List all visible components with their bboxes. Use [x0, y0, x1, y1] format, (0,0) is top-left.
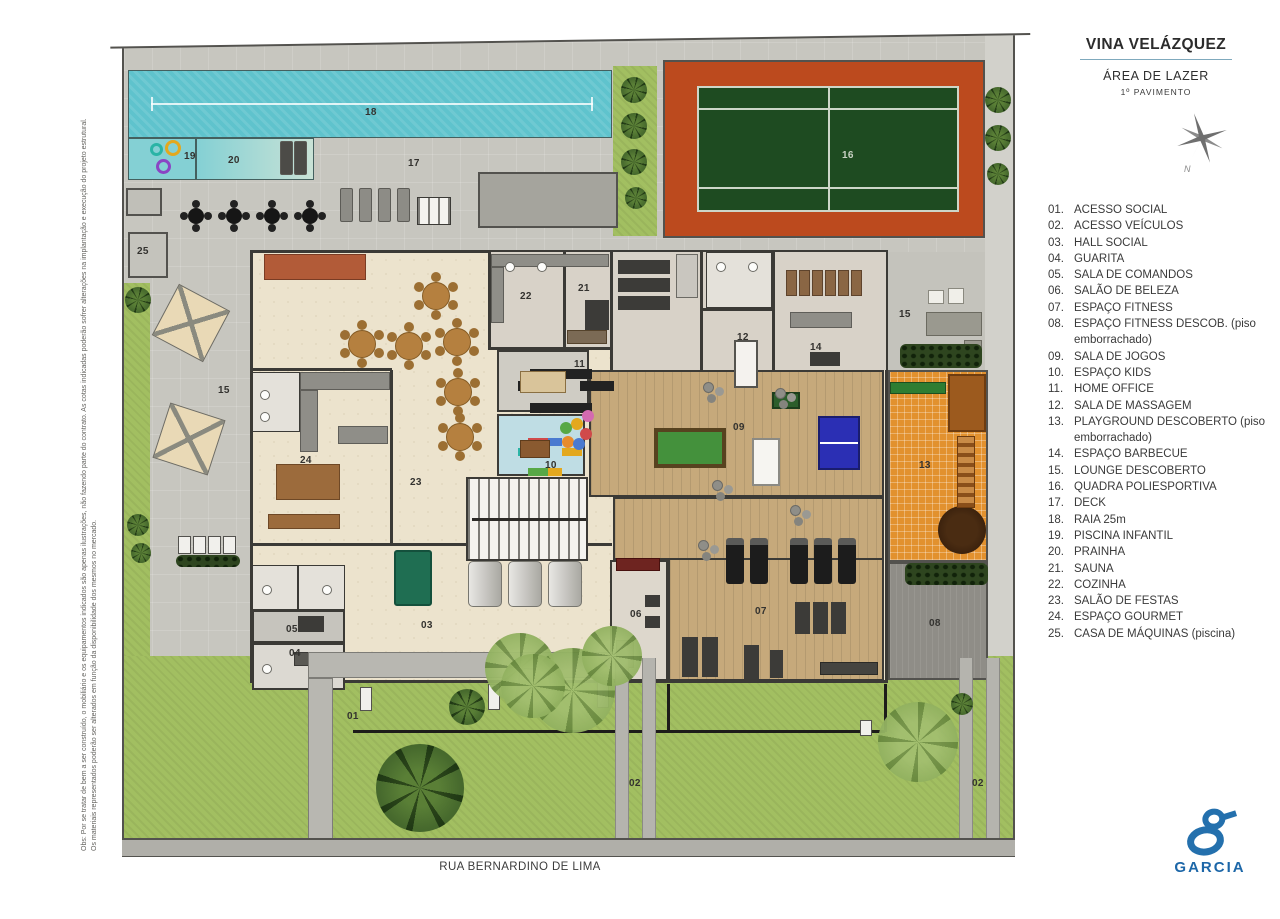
legend-item-number: 23.: [1048, 593, 1069, 609]
title-divider: [1080, 59, 1232, 60]
court-center-line: [828, 88, 830, 210]
legend-item-label: HOME OFFICE: [1074, 381, 1154, 397]
grass-west-strip: [124, 283, 150, 656]
gym-machine: [770, 650, 783, 678]
wall: [610, 252, 613, 372]
legend-item: 07.ESPAÇO FITNESS: [1048, 300, 1272, 316]
area-number-label: 22: [520, 291, 532, 302]
barbecue-chair: [825, 270, 836, 296]
fence-post: [860, 720, 872, 736]
locker: [618, 260, 670, 274]
wall: [390, 370, 393, 545]
hall-pouf: [468, 561, 502, 607]
compass-rose-icon: [1169, 105, 1235, 171]
area-number-label: 02: [629, 778, 641, 789]
pump-equipment-room: [126, 188, 162, 216]
area-number-label: 12: [737, 332, 749, 343]
party-round-table: [395, 332, 423, 360]
palm-tree: [621, 77, 647, 103]
wall: [772, 252, 775, 372]
palm-tree: [625, 187, 647, 209]
massage-table: [734, 340, 758, 388]
buffet-counter: [264, 254, 366, 280]
restrooms-service: [706, 252, 772, 308]
social-access-path: [308, 678, 333, 840]
toilet-fixture: [748, 262, 758, 272]
kitchen-counter: [491, 267, 504, 323]
bbq-grill: [810, 352, 840, 366]
kitchen-island: [338, 426, 388, 444]
palm-tree: [131, 543, 151, 563]
bench: [178, 536, 191, 554]
deck-steps: [417, 197, 451, 225]
area-number-label: 09: [733, 422, 745, 433]
area-number-label: 18: [365, 107, 377, 118]
legend-item-label: RAIA 25m: [1074, 512, 1126, 528]
bench-hedge: [176, 555, 240, 567]
kitchen-appliance: [585, 300, 609, 330]
area-number-label: 14: [810, 342, 822, 353]
legend-item-label: PRAINHA: [1074, 544, 1125, 560]
legend-item-number: 22.: [1048, 577, 1069, 593]
exercise-bike: [795, 602, 810, 634]
swim-ring: [150, 143, 163, 156]
palm-tree: [449, 689, 485, 725]
deck-dining-set: [226, 208, 242, 224]
area-number-label: 17: [408, 158, 420, 169]
toilet-fixture: [262, 664, 272, 674]
driveway-east-lane: [986, 658, 1000, 838]
legend-item-label: SAUNA: [1074, 561, 1114, 577]
page-title: VINA VELÁZQUEZ: [1040, 36, 1272, 54]
area-number-label: 15: [899, 309, 911, 320]
wall: [700, 308, 775, 311]
legend-item: 03.HALL SOCIAL: [1048, 235, 1272, 251]
toilet-fixture: [537, 262, 547, 272]
legend-item: 09.SALA DE JOGOS: [1048, 349, 1272, 365]
wall: [488, 347, 612, 350]
gym-bench: [744, 645, 759, 679]
ping-pong-net: [820, 442, 858, 444]
bench: [208, 536, 221, 554]
sports-court: [697, 86, 959, 212]
palm-tree: [125, 287, 151, 313]
legend-item-number: 16.: [1048, 479, 1069, 495]
legend-item-number: 19.: [1048, 528, 1069, 544]
toilet-fixture: [716, 262, 726, 272]
area-number-label: 05: [286, 624, 298, 635]
playground-slide: [890, 382, 946, 394]
palm-tree: [951, 693, 973, 715]
legend-item: 22.COZINHA: [1048, 577, 1272, 593]
tree-canopy: [582, 626, 642, 686]
party-round-table: [443, 328, 471, 356]
lounge-pouf: [948, 288, 964, 304]
legend-item-label: ESPAÇO BARBECUE: [1074, 446, 1188, 462]
wall: [252, 368, 392, 371]
hall-pouf: [548, 561, 582, 607]
hall-sofa: [394, 550, 432, 606]
garcia-logo-mark: [1174, 803, 1245, 861]
sidewalk: [122, 838, 1015, 856]
legend-item: 13.PLAYGROUND DESCOBERTO (piso emborrach…: [1048, 414, 1272, 447]
restroom-hall: [252, 565, 298, 610]
toilet-fixture: [505, 262, 515, 272]
legend-item-label: GUARITA: [1074, 251, 1124, 267]
palm-tree: [376, 744, 464, 832]
area-number-label: 23: [410, 477, 422, 488]
compass-north-label: N: [1184, 164, 1191, 174]
palm-tree: [621, 149, 647, 175]
legend-item-label: QUADRA POLIESPORTIVA: [1074, 479, 1217, 495]
toilet-fixture: [260, 412, 270, 422]
street-name: RUA BERNARDINO DE LIMA: [370, 861, 670, 873]
disclaimer-line-2: Os materiais representados poderão ser a…: [90, 56, 100, 851]
party-round-table: [348, 330, 376, 358]
decor: [1169, 105, 1235, 171]
restrooms-gourmet: [252, 372, 300, 432]
legend-item-label: ESPAÇO FITNESS: [1074, 300, 1173, 316]
air-hockey-table: [752, 438, 780, 486]
treadmill: [750, 538, 768, 584]
hedge-row: [905, 563, 988, 585]
toilet-fixture: [262, 585, 272, 595]
legend-item-label: SALA DE MASSAGEM: [1074, 398, 1192, 414]
treadmill: [726, 538, 744, 584]
area-number-label: 25: [137, 246, 149, 257]
palm-tree: [621, 113, 647, 139]
deck-dining-set: [188, 208, 204, 224]
area-number-label: 13: [919, 460, 931, 471]
pouf-cluster: [698, 540, 709, 551]
deck-dining-set: [264, 208, 280, 224]
fence-post: [360, 687, 372, 711]
legend-item: 17.DECK: [1048, 495, 1272, 511]
legend-item: 15.LOUNGE DESCOBERTO: [1048, 463, 1272, 479]
palm-tree: [987, 163, 1009, 185]
bench: [223, 536, 236, 554]
legend-item: 14.ESPAÇO BARBECUE: [1048, 446, 1272, 462]
sun-lounger: [359, 188, 372, 222]
shower-stall: [676, 254, 698, 298]
decor: [1186, 808, 1242, 855]
legend-item: 20.PRAINHA: [1048, 544, 1272, 560]
legend-item-label: DECK: [1074, 495, 1106, 511]
driveway-west-lane: [642, 658, 656, 838]
legend-item: 19.PISCINA INFANTIL: [1048, 528, 1272, 544]
legend-item-label: ESPAÇO KIDS: [1074, 365, 1151, 381]
legend-item-number: 07.: [1048, 300, 1069, 316]
bbq-counter: [790, 312, 852, 328]
legend-item-label: ACESSO VEÍCULOS: [1074, 218, 1183, 234]
swim-ring: [156, 159, 171, 174]
treadmill: [814, 538, 832, 584]
legend-item-label: ESPAÇO FITNESS DESCOB. (piso emborrachad…: [1074, 316, 1272, 349]
kids-play-mats: [560, 422, 572, 434]
legend-item: 10.ESPAÇO KIDS: [1048, 365, 1272, 381]
salon-chair: [645, 616, 660, 628]
legend-item: 24.ESPAÇO GOURMET: [1048, 609, 1272, 625]
legend-item-number: 13.: [1048, 414, 1069, 447]
legend-item-label: SALÃO DE BELEZA: [1074, 283, 1179, 299]
snooker-table: [654, 428, 726, 468]
staircase: [466, 477, 588, 561]
palm-tree: [985, 87, 1011, 113]
garcia-logo-text: GARCIA: [1150, 859, 1270, 876]
area-number-label: 16: [842, 150, 854, 161]
legend-item: 21.SAUNA: [1048, 561, 1272, 577]
playground-structure: [948, 374, 986, 432]
legend-item-number: 09.: [1048, 349, 1069, 365]
toilet-fixture: [322, 585, 332, 595]
legend-item-label: PISCINA INFANTIL: [1074, 528, 1173, 544]
swim-ring: [165, 140, 181, 156]
legend-item-number: 03.: [1048, 235, 1069, 251]
legend-item-label: COZINHA: [1074, 577, 1126, 593]
gym-machine: [682, 637, 698, 677]
deck-pergola: [478, 172, 618, 228]
area-number-label: 24: [300, 455, 312, 466]
gym-machine: [702, 637, 718, 677]
pouf-cluster: [790, 505, 801, 516]
sauna-bench: [567, 330, 607, 344]
legend-item-number: 04.: [1048, 251, 1069, 267]
legend-item-number: 11.: [1048, 381, 1069, 397]
pool-lane-line: [151, 103, 593, 105]
legend-item-number: 14.: [1048, 446, 1069, 462]
legend-item-label: LOUNGE DESCOBERTO: [1074, 463, 1206, 479]
decor: [1182, 118, 1223, 159]
stair-handrail: [472, 518, 586, 521]
palm-tree: [127, 514, 149, 536]
command-desk: [298, 616, 324, 632]
driveway-east-lane: [959, 658, 973, 838]
legend-item-number: 17.: [1048, 495, 1069, 511]
legend-item-label: ACESSO SOCIAL: [1074, 202, 1167, 218]
legend-item: 01.ACESSO SOCIAL: [1048, 202, 1272, 218]
garcia-logo: GARCIA: [1150, 808, 1270, 876]
legend-item-number: 20.: [1048, 544, 1069, 560]
toilet-fixture: [260, 390, 270, 400]
legend-item-label: SALÃO DE FESTAS: [1074, 593, 1179, 609]
area-number-label: 01: [347, 711, 359, 722]
legend-item-number: 10.: [1048, 365, 1069, 381]
office-conference-table: [520, 371, 566, 393]
exercise-bike: [813, 602, 828, 634]
barbecue-chair: [812, 270, 823, 296]
legend-item-label: HALL SOCIAL: [1074, 235, 1148, 251]
gourmet-table: [276, 464, 340, 500]
exercise-bike: [831, 602, 846, 634]
area-number-label: 21: [578, 283, 590, 294]
legend-item-number: 15.: [1048, 463, 1069, 479]
sun-lounger: [397, 188, 410, 222]
legend-item-number: 25.: [1048, 626, 1069, 642]
pool-lane-tick: [591, 97, 593, 111]
playground-ladder: [957, 436, 975, 508]
area-number-label: 20: [228, 155, 240, 166]
deck-dining-set: [302, 208, 318, 224]
lap-pool: [128, 70, 612, 138]
legend-item-number: 24.: [1048, 609, 1069, 625]
legend-item-label: SALA DE COMANDOS: [1074, 267, 1193, 283]
pouf-cluster: [712, 480, 723, 491]
area-number-label: 19: [184, 151, 196, 162]
sun-lounger: [294, 141, 307, 175]
decor: [1189, 827, 1222, 854]
pouf-cluster: [703, 382, 714, 393]
legend-item: 25.CASA DE MÁQUINAS (piscina): [1048, 626, 1272, 642]
party-round-table: [444, 378, 472, 406]
legend-item: 18.RAIA 25m: [1048, 512, 1272, 528]
area-number-label: 03: [421, 620, 433, 631]
legend-item-number: 12.: [1048, 398, 1069, 414]
gourmet-counter: [300, 372, 390, 390]
legend-item: 04.GUARITA: [1048, 251, 1272, 267]
gourmet-table-2: [268, 514, 340, 529]
legend-item-number: 21.: [1048, 561, 1069, 577]
area-number-label: 11: [574, 359, 585, 370]
area-number-label: 06: [630, 609, 642, 620]
lounge-sofa: [926, 312, 982, 336]
kids-table: [520, 440, 550, 458]
legend-list: 01.ACESSO SOCIAL02.ACESSO VEÍCULOS03.HAL…: [1048, 202, 1272, 642]
legend-item-number: 05.: [1048, 267, 1069, 283]
subtitle: ÁREA DE LAZER: [1040, 69, 1272, 83]
barbecue-chair: [851, 270, 862, 296]
hall-pouf: [508, 561, 542, 607]
legend-item-number: 08.: [1048, 316, 1069, 349]
barbecue-chair: [786, 270, 797, 296]
legend-item-number: 06.: [1048, 283, 1069, 299]
legend-item-number: 18.: [1048, 512, 1069, 528]
legend-item: 11.HOME OFFICE: [1048, 381, 1272, 397]
planter-hedge: [900, 344, 982, 368]
treadmill: [790, 538, 808, 584]
barbecue-chair: [838, 270, 849, 296]
area-number-label: 10: [545, 460, 557, 471]
gourmet-counter: [300, 390, 318, 452]
palm-tree: [985, 125, 1011, 151]
salon-chair: [645, 595, 660, 607]
wall: [700, 252, 703, 372]
legend-item-label: CASA DE MÁQUINAS (piscina): [1074, 626, 1235, 642]
subtitle-floor: 1º PAVIMENTO: [1040, 87, 1272, 97]
decor: [1182, 118, 1223, 159]
area-number-label: 07: [755, 606, 767, 617]
disclaimer-line-1: Obs: Por se tratar de bem a ser construí…: [80, 56, 90, 851]
pool-lane-tick: [151, 97, 153, 111]
legend-item-label: PLAYGROUND DESCOBERTO (piso emborrachado…: [1074, 414, 1272, 447]
area-number-label: 08: [929, 618, 941, 629]
treadmill: [838, 538, 856, 584]
area-number-label: 15: [218, 385, 230, 396]
sun-lounger: [340, 188, 353, 222]
legend-item: 12.SALA DE MASSAGEM: [1048, 398, 1272, 414]
pouf-cluster: [775, 388, 786, 399]
sun-lounger: [280, 141, 293, 175]
sun-lounger: [378, 188, 391, 222]
bench: [193, 536, 206, 554]
fence-return: [667, 684, 670, 732]
legend-item-number: 01.: [1048, 202, 1069, 218]
area-number-label: 02: [972, 778, 984, 789]
legend-item-label: ESPAÇO GOURMET: [1074, 609, 1183, 625]
legend-item: 08.ESPAÇO FITNESS DESCOB. (piso emborrac…: [1048, 316, 1272, 349]
party-round-table: [422, 282, 450, 310]
legend-item-label: SALA DE JOGOS: [1074, 349, 1165, 365]
lounge-pouf: [928, 290, 944, 304]
tree-canopy: [501, 654, 565, 718]
locker: [618, 296, 670, 310]
decor: [1169, 105, 1235, 171]
tree-canopy-dark: [938, 506, 986, 554]
ping-pong-table: [818, 416, 860, 470]
tree-canopy: [878, 702, 958, 782]
salon-bench: [616, 558, 660, 571]
decor: [1204, 810, 1223, 828]
barbecue-chair: [799, 270, 810, 296]
dumbbell-rack: [820, 662, 878, 675]
legend-item: 16.QUADRA POLIESPORTIVA: [1048, 479, 1272, 495]
legend-item: 06.SALÃO DE BELEZA: [1048, 283, 1272, 299]
legend-item-number: 02.: [1048, 218, 1069, 234]
area-number-label: 04: [289, 648, 301, 659]
legend-item: 05.SALA DE COMANDOS: [1048, 267, 1272, 283]
legend-item: 23.SALÃO DE FESTAS: [1048, 593, 1272, 609]
legend-item: 02.ACESSO VEÍCULOS: [1048, 218, 1272, 234]
disclaimer-note: Obs: Por se tratar de bem a ser construí…: [80, 56, 100, 851]
title-block: VINA VELÁZQUEZ ÁREA DE LAZER 1º PAVIMENT…: [1040, 36, 1272, 97]
locker: [618, 278, 670, 292]
party-round-table: [446, 423, 474, 451]
